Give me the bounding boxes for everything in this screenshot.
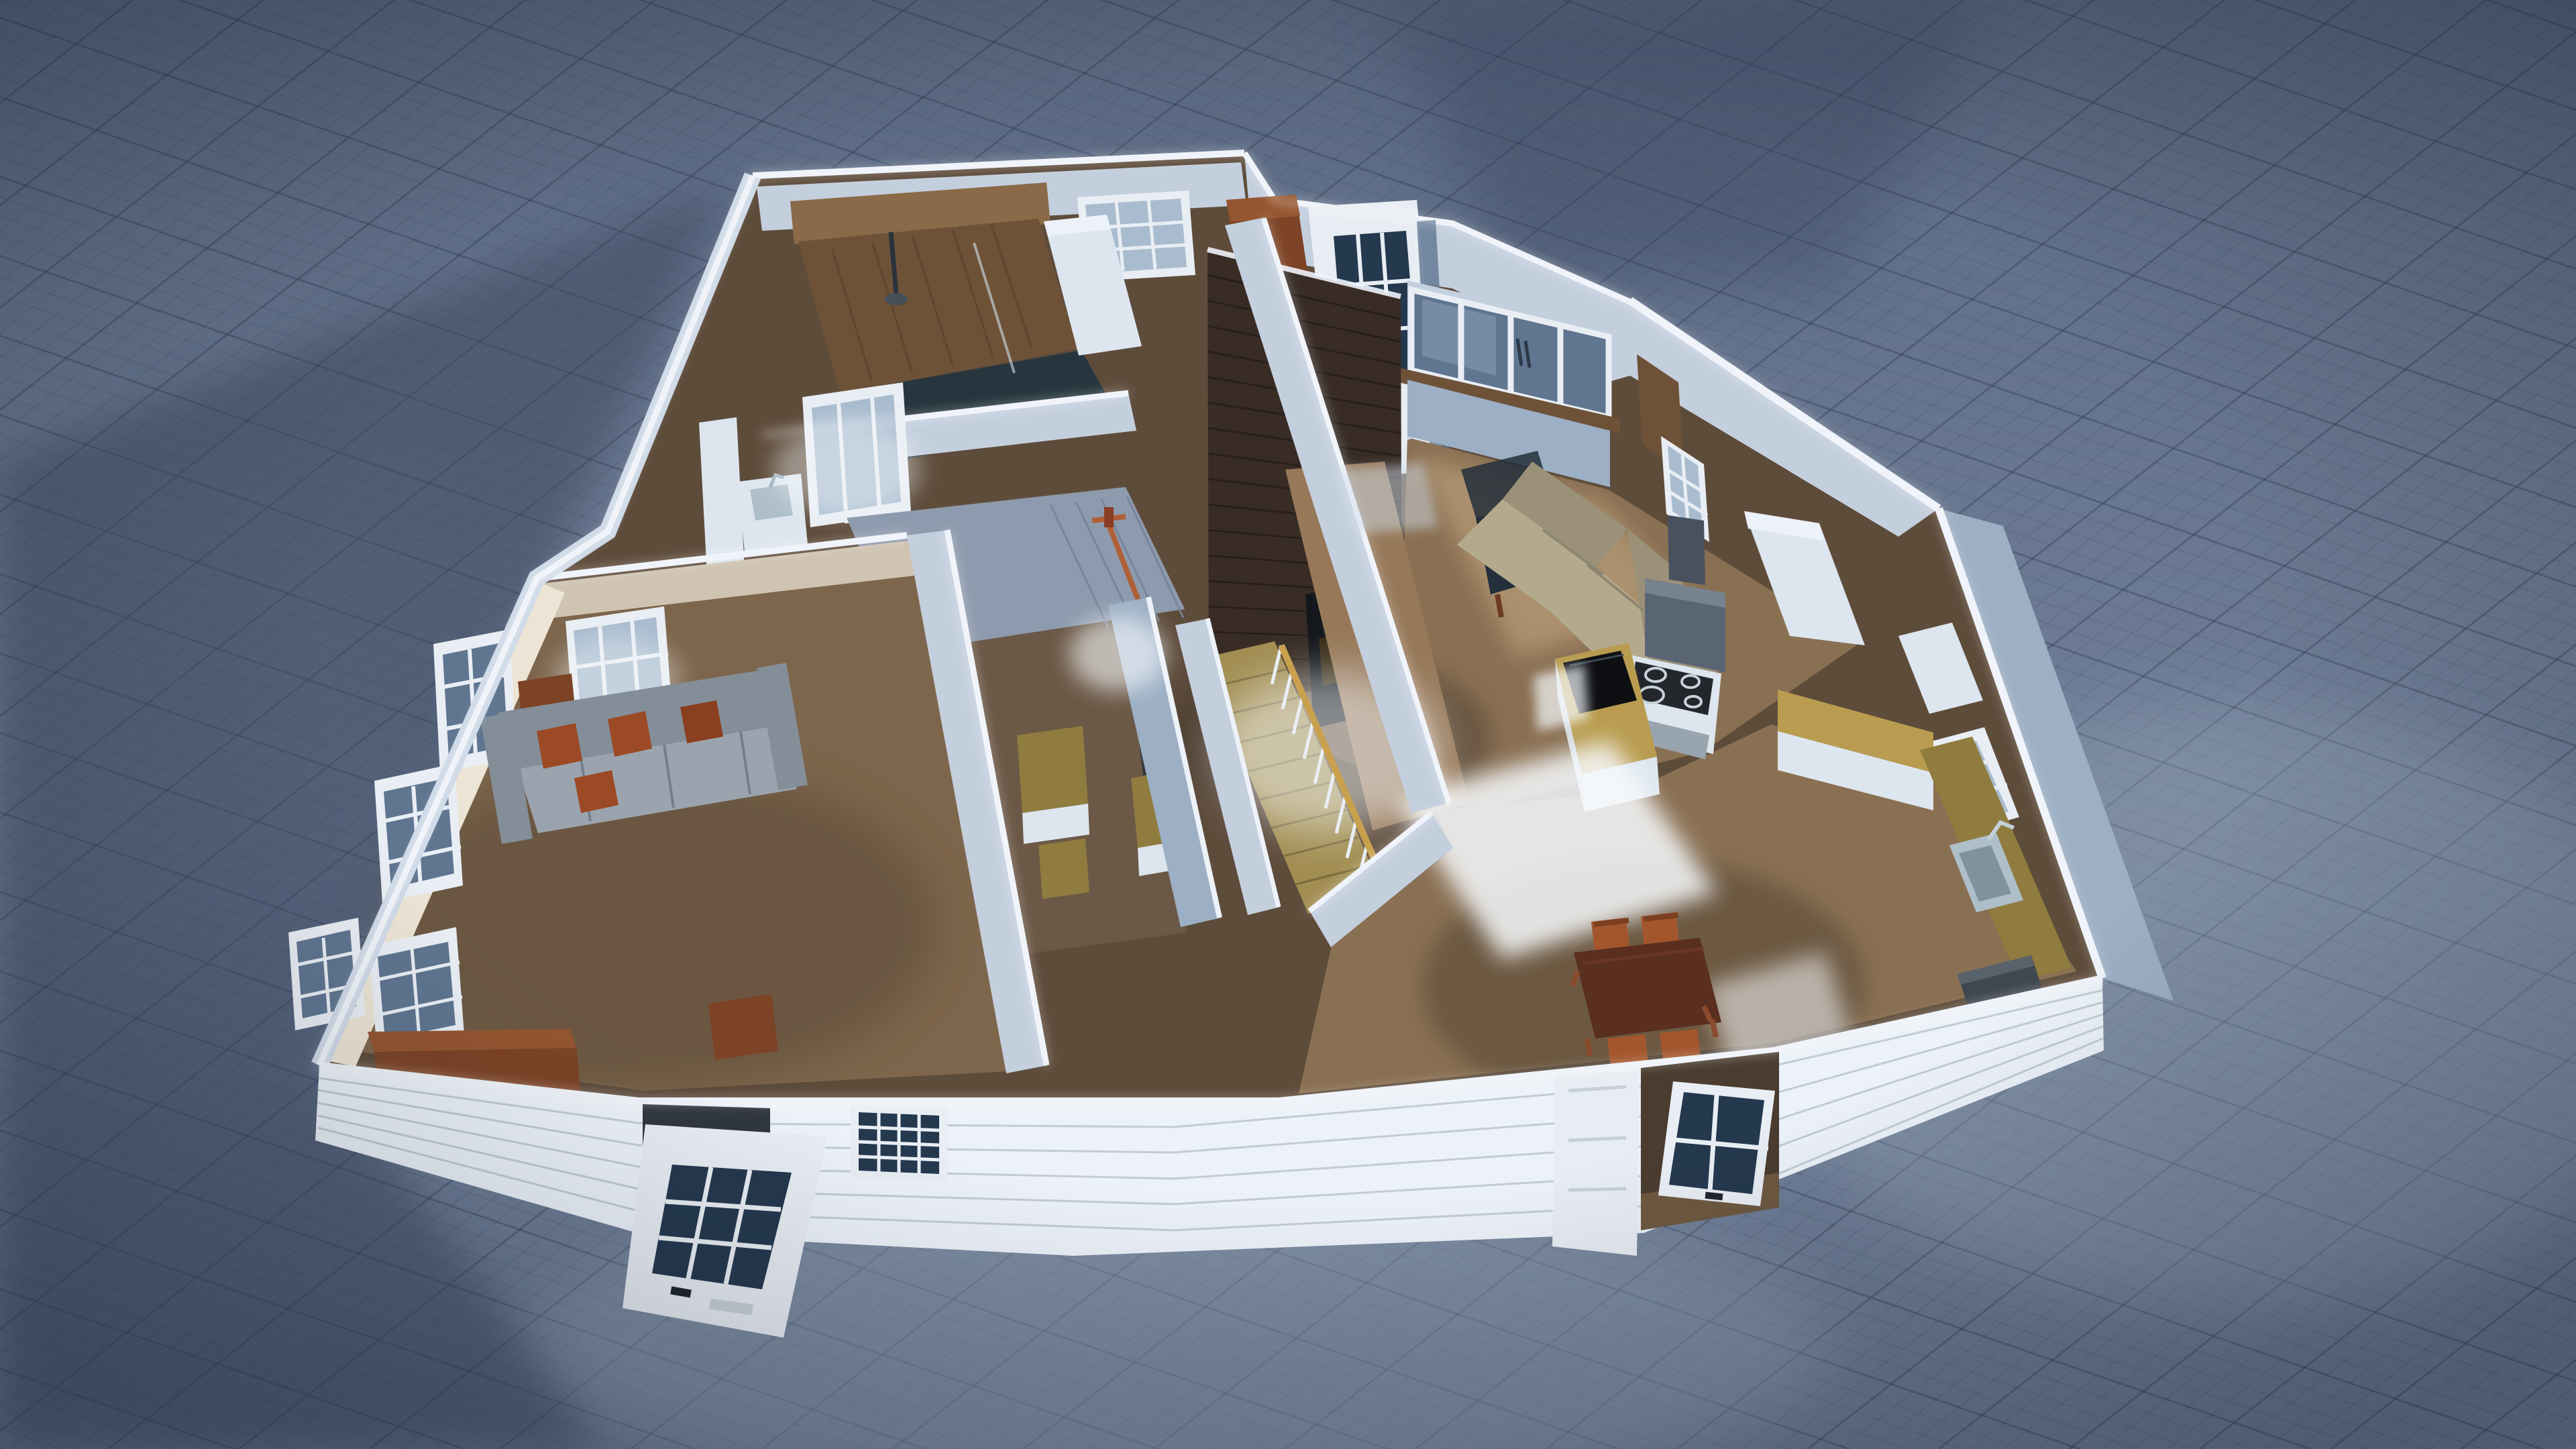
viewport-3d[interactable] — [0, 0, 2576, 1449]
desk-2[interactable] — [1038, 839, 1089, 899]
side-table[interactable] — [708, 994, 778, 1060]
newel-post — [1104, 507, 1114, 527]
desk-1[interactable] — [1017, 726, 1089, 844]
hall-door-light — [1338, 463, 1438, 534]
open-casement-window[interactable] — [1658, 1081, 1775, 1206]
front-siding-window[interactable] — [851, 1104, 947, 1182]
laundry-light-pool — [773, 423, 920, 517]
back-door-opening[interactable] — [1552, 1052, 1779, 1256]
render-scene[interactable] — [0, 0, 2576, 1449]
open-back-door[interactable] — [1552, 1071, 1640, 1256]
bathroom-light-spot — [1069, 616, 1166, 692]
